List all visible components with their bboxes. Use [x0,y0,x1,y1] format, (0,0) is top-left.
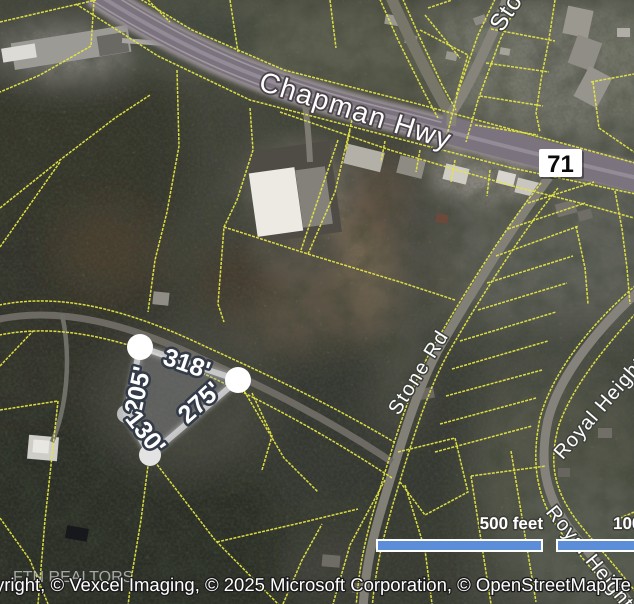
svg-text:1000 fe: 1000 fe [613,514,634,533]
svg-text:500 feet: 500 feet [480,514,544,533]
svg-text:Copyright, © Vexcel Imaging, ©: Copyright, © Vexcel Imaging, © 2025 Micr… [0,574,631,595]
svg-text:71: 71 [547,151,574,178]
